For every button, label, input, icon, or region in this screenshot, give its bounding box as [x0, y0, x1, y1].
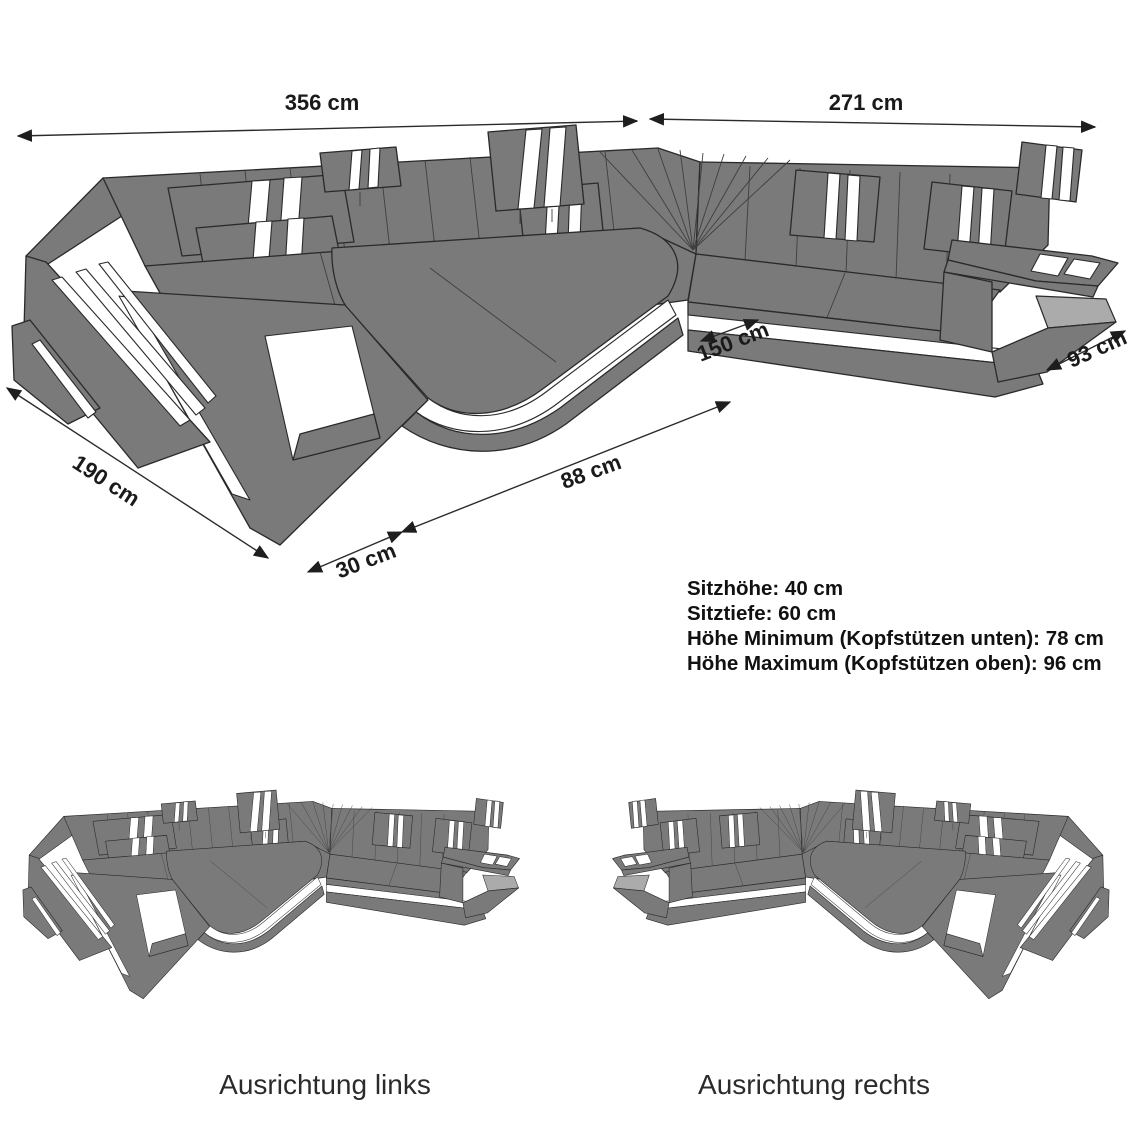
spec-seat-height: Sitzhöhe: 40 cm [687, 576, 1104, 601]
sofa-variant-left-image [23, 790, 520, 999]
dimension-sheet: 356 cm 271 cm 150 cm 93 cm 190 cm 30 cm … [0, 0, 1134, 1134]
diagram-canvas [0, 0, 1134, 1134]
variant-label-right: Ausrichtung rechts [698, 1069, 930, 1101]
dim-label-back-width-right: 271 cm [829, 90, 904, 116]
spec-seat-depth: Sitztiefe: 60 cm [687, 601, 1104, 626]
spec-height-min: Höhe Minimum (Kopfstützen unten): 78 cm [687, 626, 1104, 651]
dim-line-271 [650, 119, 1095, 127]
spec-text-block: Sitzhöhe: 40 cm Sitztiefe: 60 cm Höhe Mi… [687, 576, 1104, 676]
spec-height-max: Höhe Maximum (Kopfstützen oben): 96 cm [687, 651, 1104, 676]
sofa-variant-right-image [613, 790, 1110, 999]
dim-label-back-width-left: 356 cm [285, 90, 360, 116]
variant-label-left: Ausrichtung links [219, 1069, 431, 1101]
